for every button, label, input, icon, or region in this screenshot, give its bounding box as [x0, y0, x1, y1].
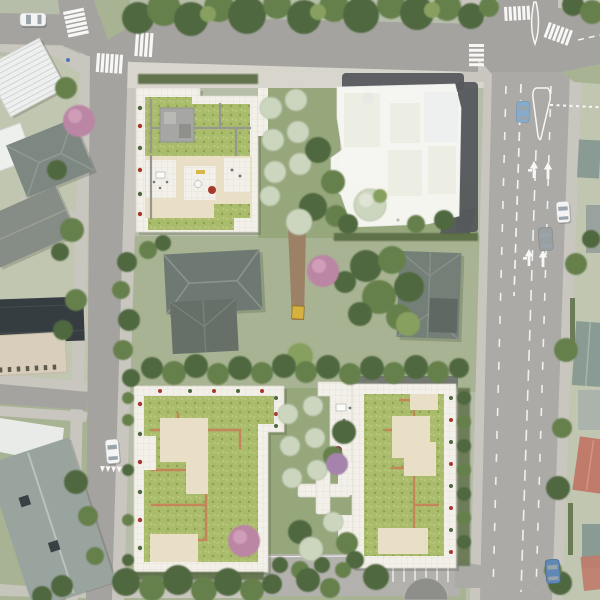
ghost-building — [331, 73, 478, 234]
building-a-roof-structure — [160, 108, 194, 142]
building-c-balcony — [144, 436, 156, 470]
east-house-teal-1 — [577, 139, 600, 178]
building-a-green-strip-2 — [214, 204, 250, 218]
site-plan-canvas — [0, 0, 600, 600]
north-hedge — [138, 74, 258, 84]
building-c-patio-2 — [150, 534, 198, 562]
south-garden-hedge — [334, 233, 478, 241]
car-white-top-road — [20, 13, 47, 28]
car-blue-avenue-south — [545, 559, 561, 584]
building-d-patio-3 — [378, 528, 428, 554]
traffic-island-north — [532, 2, 539, 44]
car-lightblue-avenue — [516, 101, 530, 123]
building-a-patio-3 — [224, 158, 250, 192]
east-house-gray-2 — [578, 390, 600, 430]
building-d-patio-2 — [410, 394, 438, 410]
pedestrian — [66, 58, 70, 62]
tan-apartment-block — [0, 332, 67, 376]
east-hedge-2 — [568, 503, 573, 555]
yellow-machine — [292, 306, 305, 320]
car-gray-avenue — [538, 227, 554, 251]
car-white-avenue — [556, 201, 572, 224]
car-white-west-street — [105, 439, 121, 466]
building-a-green-strip-1 — [148, 218, 234, 230]
aerial-site-plan — [0, 0, 600, 600]
